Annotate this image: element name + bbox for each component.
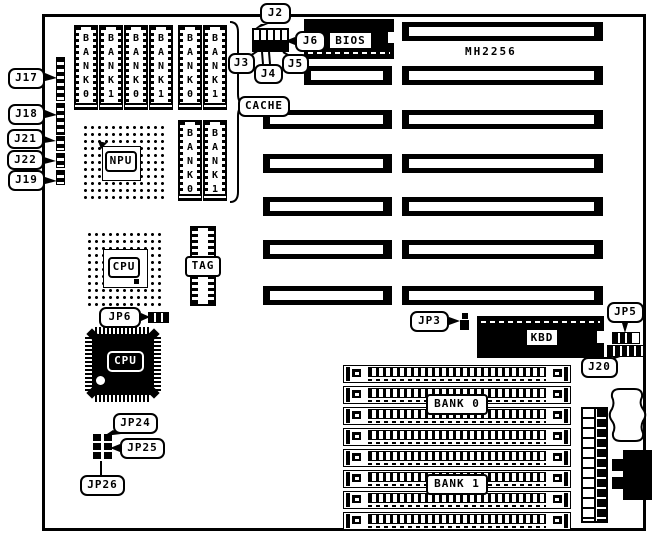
kbd-label: KBD xyxy=(525,328,559,347)
j2-callout: J2 xyxy=(260,3,291,24)
simm-bank0-label: BANK 0 xyxy=(426,394,488,415)
cpu-socket-label: CPU xyxy=(108,257,140,278)
j21-leader-line xyxy=(44,136,56,143)
jp24-callout: JP24 xyxy=(113,413,158,434)
j4-leader-line xyxy=(262,52,263,64)
cache-callout: CACHE xyxy=(238,96,290,117)
npu-pin1-arrow xyxy=(98,141,107,149)
j17-leader-line xyxy=(45,73,57,81)
simm-bank1-label: BANK 1 xyxy=(426,474,488,495)
j2-leader-line xyxy=(253,24,268,30)
j19-leader-line xyxy=(45,177,57,184)
jp3-callout: JP3 xyxy=(410,311,449,332)
jp5-leader-line xyxy=(622,323,628,333)
j3-callout: J3 xyxy=(228,53,255,74)
j21-callout: J21 xyxy=(7,129,44,149)
jp3-leader-line xyxy=(449,317,460,325)
j6-callout: J6 xyxy=(295,31,326,52)
j4-leader-line xyxy=(269,52,270,64)
npu-label: NPU xyxy=(105,151,137,172)
leader-line-overlay xyxy=(0,0,652,537)
motherboard-diagram: MH2256 BIOS B A N K 0 B A N K 1 B A N K … xyxy=(0,0,652,537)
bios-label: BIOS xyxy=(328,31,373,50)
j20-callout: J20 xyxy=(581,357,618,378)
battery-outline xyxy=(610,389,646,441)
j5-callout: J5 xyxy=(282,54,309,74)
j4-callout: J4 xyxy=(254,64,283,84)
j6-leader-line xyxy=(285,37,295,45)
j22-leader-line xyxy=(44,157,56,164)
tag-label: TAG xyxy=(185,256,221,277)
j18-callout: J18 xyxy=(8,104,45,125)
j18-leader-line xyxy=(45,110,57,118)
j22-callout: J22 xyxy=(7,150,44,170)
cpu-qfp-label: CPU xyxy=(107,351,144,372)
jp5-callout: JP5 xyxy=(607,302,644,323)
jp6-callout: JP6 xyxy=(99,307,141,328)
jp26-callout: JP26 xyxy=(80,475,125,496)
jp25-callout: JP25 xyxy=(120,438,165,459)
j17-callout: J17 xyxy=(8,68,45,89)
jp6-leader-line xyxy=(141,313,150,321)
jp25-leader-line xyxy=(110,444,120,452)
j19-callout: J19 xyxy=(8,170,45,191)
